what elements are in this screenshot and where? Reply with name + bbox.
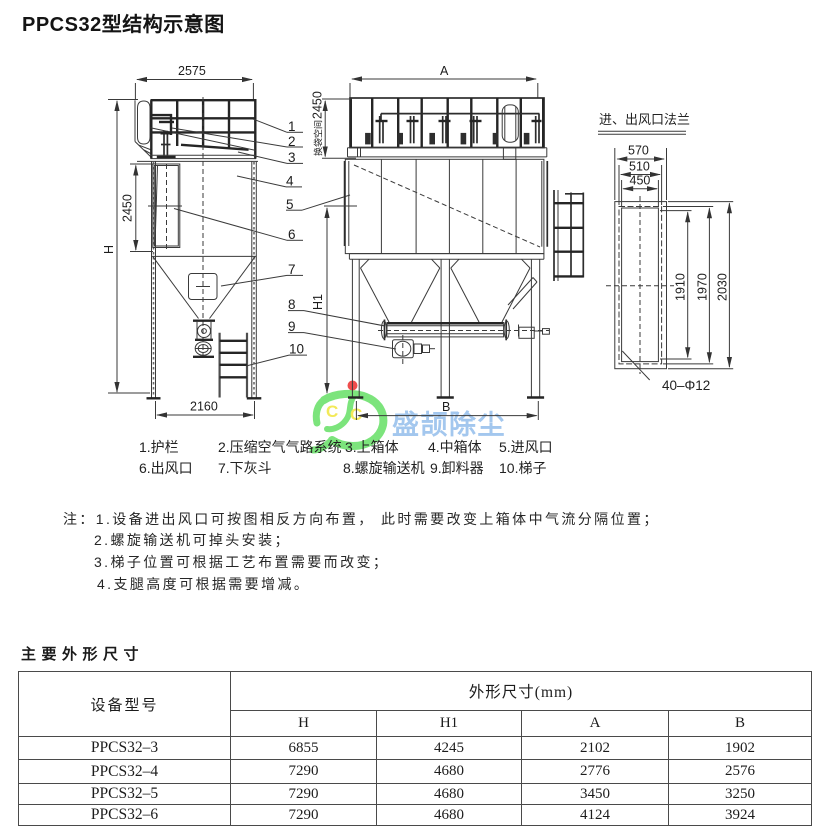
svg-text:5: 5 <box>286 197 294 212</box>
svg-text:6: 6 <box>288 227 296 242</box>
svg-text:4: 4 <box>286 174 294 189</box>
svg-text:2575: 2575 <box>178 64 206 78</box>
svg-text:H1: H1 <box>311 294 325 310</box>
svg-text:C: C <box>326 402 338 421</box>
svg-text:2160: 2160 <box>190 400 218 414</box>
svg-text:510: 510 <box>629 160 650 174</box>
svg-text:A: A <box>440 64 449 78</box>
svg-text:2030: 2030 <box>716 273 730 301</box>
svg-text:8: 8 <box>288 297 296 312</box>
svg-text:1: 1 <box>288 119 296 134</box>
svg-text:1910: 1910 <box>674 273 688 301</box>
svg-text:9: 9 <box>288 319 296 334</box>
svg-text:7: 7 <box>288 262 296 277</box>
svg-text:40–Φ12: 40–Φ12 <box>662 378 710 393</box>
svg-text:1970: 1970 <box>696 273 710 301</box>
svg-text:2450: 2450 <box>121 194 135 222</box>
svg-text:570: 570 <box>628 144 649 158</box>
svg-text:B: B <box>442 400 450 414</box>
svg-text:3: 3 <box>288 150 296 165</box>
svg-text:进、出风口法兰: 进、出风口法兰 <box>599 112 690 127</box>
svg-text:450: 450 <box>630 174 651 188</box>
svg-text:换袋空间2450: 换袋空间2450 <box>311 91 325 156</box>
svg-text:10: 10 <box>289 342 304 357</box>
svg-text:H: H <box>102 245 116 254</box>
